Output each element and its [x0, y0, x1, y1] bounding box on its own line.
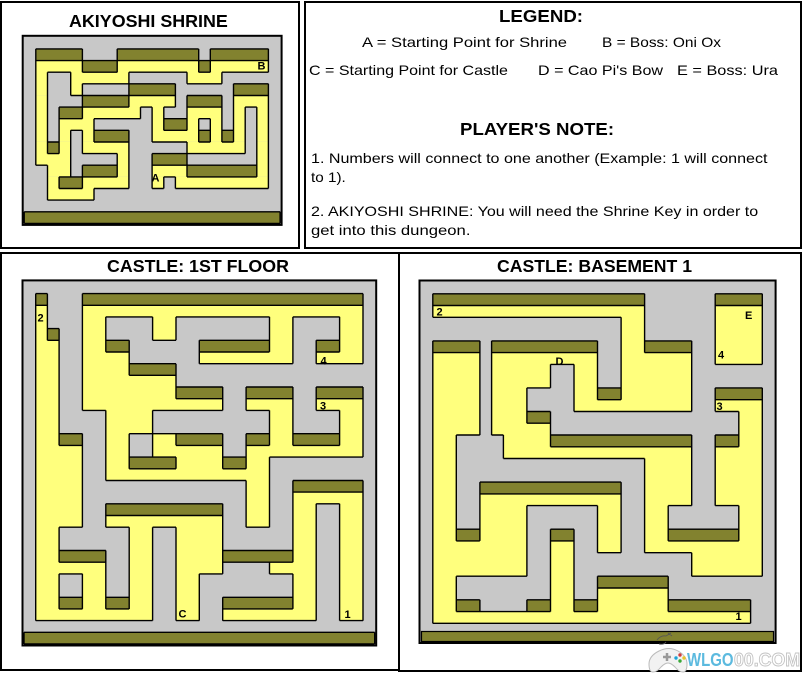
- svg-text:2: 2: [437, 307, 443, 319]
- svg-text:WLGO: WLGO: [687, 649, 734, 670]
- svg-text:2: 2: [38, 313, 44, 325]
- svg-text:B: B: [258, 61, 266, 73]
- svg-text:A: A: [152, 173, 160, 185]
- svg-text:4: 4: [321, 356, 328, 368]
- svg-text:3: 3: [320, 401, 326, 413]
- svg-text:1: 1: [736, 611, 742, 623]
- svg-text:D: D: [556, 356, 564, 368]
- svg-text:3: 3: [717, 401, 723, 413]
- svg-text:00.COM: 00.COM: [734, 649, 800, 670]
- svg-text:E: E: [745, 310, 752, 322]
- svg-text:4: 4: [718, 350, 725, 362]
- svg-text:C: C: [179, 609, 187, 621]
- svg-text:1: 1: [345, 609, 351, 621]
